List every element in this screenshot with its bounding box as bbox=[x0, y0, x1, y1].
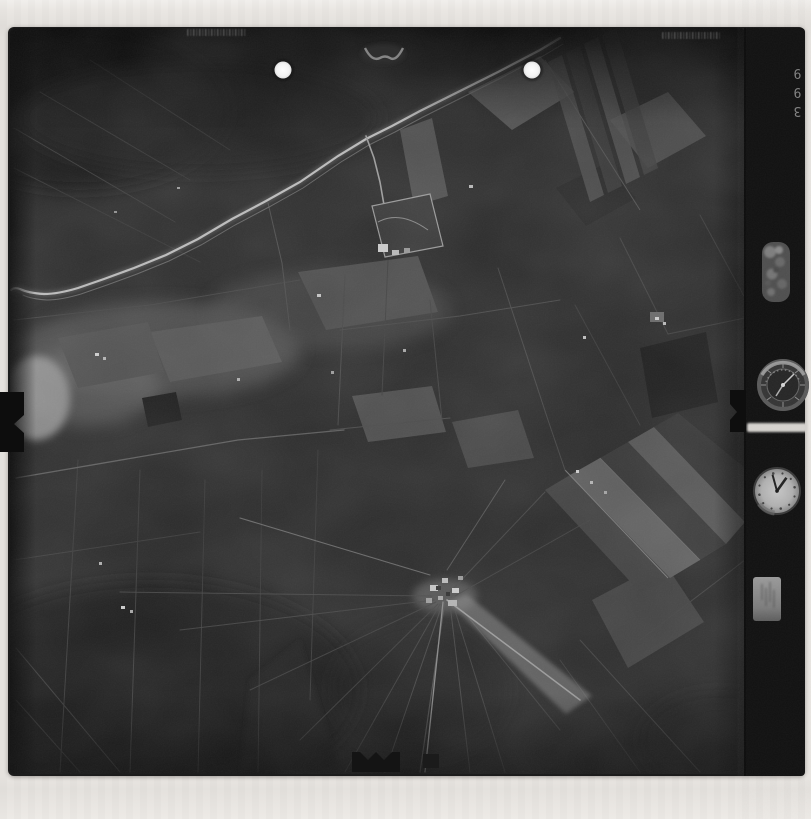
frame-number: 399 bbox=[788, 64, 808, 118]
punch-hole-right bbox=[522, 60, 543, 81]
fiducial-bottom-nub bbox=[423, 754, 439, 768]
data-strip bbox=[744, 28, 809, 776]
edge-annotation-text-right bbox=[662, 32, 720, 39]
terrain bbox=[0, 28, 800, 800]
fiducial-bottom bbox=[352, 752, 400, 772]
edge-annotation-text-left bbox=[187, 29, 247, 36]
collimation-mark-top bbox=[361, 44, 405, 64]
film-grain bbox=[10, 28, 745, 774]
strip-grain bbox=[744, 28, 805, 776]
punch-hole-left bbox=[273, 60, 294, 81]
aerial-photograph bbox=[0, 0, 811, 819]
scanned-aerial-photo-page: 399 bbox=[0, 0, 811, 819]
